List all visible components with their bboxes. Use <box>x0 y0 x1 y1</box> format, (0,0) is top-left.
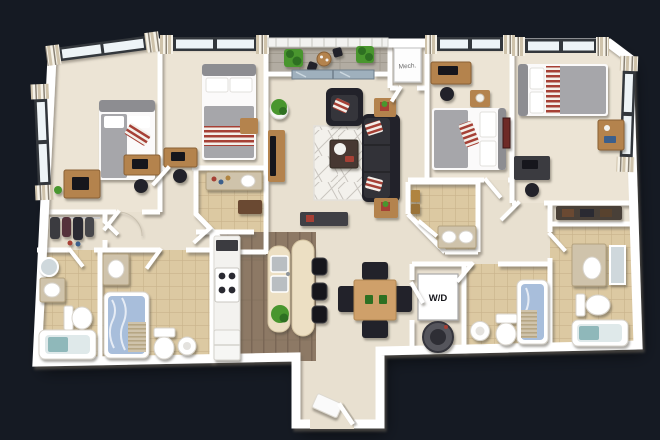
toilet <box>64 306 92 330</box>
curtain <box>144 31 160 53</box>
curtain <box>30 84 49 100</box>
nightstand <box>240 118 258 134</box>
tray <box>334 143 346 155</box>
towel <box>521 310 537 338</box>
bench <box>238 200 262 214</box>
mech-closet: Mech. <box>394 48 421 82</box>
toilet <box>496 314 517 345</box>
wd-label: W/D <box>429 293 448 304</box>
accent-blanket <box>546 66 560 114</box>
curtain <box>596 37 609 56</box>
canister <box>411 204 420 214</box>
curtain <box>160 35 173 54</box>
dining-table <box>354 280 396 320</box>
bar-stools <box>312 258 327 323</box>
curtain <box>45 44 61 66</box>
sink <box>44 283 60 297</box>
coffee-table <box>330 140 358 168</box>
bistro-table <box>317 52 331 66</box>
plant <box>54 186 62 194</box>
curtain <box>425 35 437 54</box>
tv <box>270 136 276 176</box>
curtain <box>620 56 639 72</box>
toilet <box>576 294 610 316</box>
placemat <box>379 295 387 304</box>
curtain <box>256 35 269 54</box>
placemat <box>365 295 373 304</box>
round-mirror <box>40 258 58 276</box>
countertop-appliance <box>216 240 238 251</box>
sink <box>583 257 601 279</box>
office-chair <box>173 169 187 183</box>
sink <box>459 231 473 243</box>
desk <box>598 120 624 150</box>
stove <box>215 268 239 302</box>
sink <box>442 231 456 243</box>
lamp <box>476 94 484 102</box>
floorplan-stage: Mech. <box>0 0 660 440</box>
sink <box>108 260 124 278</box>
laundry-closet: W/D <box>418 274 458 352</box>
shower-tub <box>104 292 149 358</box>
sink <box>241 175 255 187</box>
curtain <box>616 157 635 173</box>
shower-tub <box>517 280 548 344</box>
toilet <box>154 328 175 359</box>
wall-art <box>503 118 510 148</box>
mech-label: Mech. <box>398 62 416 70</box>
bathtub <box>39 330 96 359</box>
office-chair <box>440 87 454 101</box>
canister <box>411 190 420 202</box>
office-chair <box>134 179 148 193</box>
curtain <box>35 185 54 201</box>
sliding-glass-door <box>292 70 374 79</box>
mirror <box>610 246 625 284</box>
floorplan-3d: Mech. <box>0 0 660 440</box>
washer <box>423 322 453 352</box>
bathtub <box>572 320 628 346</box>
balcony-railing <box>268 38 388 47</box>
curtain <box>512 37 525 56</box>
towel <box>128 322 146 352</box>
office-chair <box>525 183 539 197</box>
